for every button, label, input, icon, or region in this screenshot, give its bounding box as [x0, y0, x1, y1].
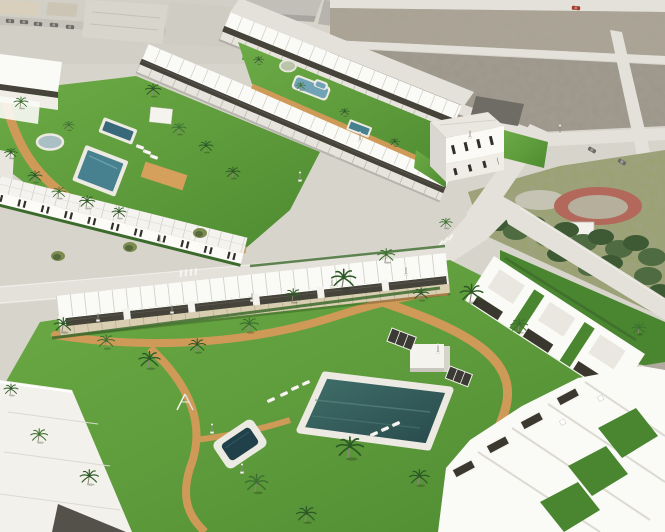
main-pool — [300, 375, 450, 447]
garden-circle — [280, 61, 296, 72]
red-car-layer — [572, 6, 581, 11]
aerial-render — [0, 0, 665, 532]
garden-shed — [149, 107, 172, 124]
round-fountain — [37, 135, 63, 150]
